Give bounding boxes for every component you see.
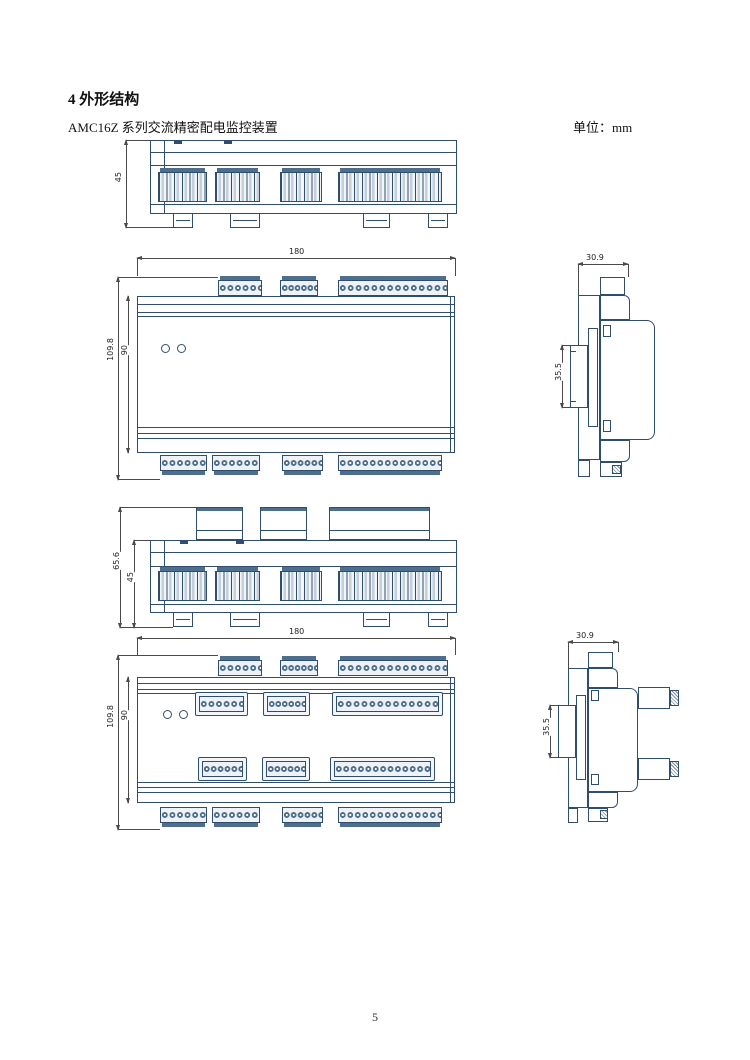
vent-slot — [174, 141, 182, 144]
mounting-foot — [578, 460, 590, 477]
drawing-front-view-plugs: 180 109.8 90 — [110, 630, 470, 835]
drawing-side-view: 30.9 35.5 — [555, 255, 705, 485]
side-plug — [638, 687, 670, 709]
terminal-strip — [338, 571, 442, 601]
edge-line — [137, 427, 455, 428]
terminal-strip — [158, 571, 207, 601]
edge-line — [570, 351, 576, 352]
led-indicator — [161, 344, 170, 353]
terminal-strip — [215, 172, 260, 202]
extension-line — [455, 258, 456, 276]
dim-label-35.5: 35.5 — [542, 718, 552, 736]
terminal-strip — [338, 807, 442, 823]
plug-housing — [260, 507, 307, 540]
terminal-strip — [215, 571, 260, 601]
drawing-top-view: 45 — [118, 138, 463, 233]
drawing-front-view: 180 109.8 90 — [110, 250, 470, 485]
terminal-strip — [218, 280, 262, 296]
led-indicator — [177, 344, 186, 353]
din-clip — [558, 705, 576, 758]
dim-label-45: 45 — [126, 572, 136, 582]
side-plug — [638, 758, 670, 780]
extension-line — [137, 638, 138, 655]
terminal-strip — [160, 807, 207, 823]
edge-line — [150, 552, 457, 553]
housing-lower — [588, 792, 618, 808]
latch-slot — [603, 325, 611, 337]
top-clip — [588, 652, 613, 668]
dim-line-45 — [134, 540, 135, 628]
edge-line — [150, 165, 457, 166]
dim-label-109.8: 109.8 — [106, 338, 116, 361]
vent-slot — [224, 141, 232, 144]
plug-housing — [196, 507, 243, 540]
dim-label-109.8: 109.8 — [106, 705, 116, 728]
terminal-strip — [280, 660, 318, 676]
terminal-strip — [160, 455, 207, 471]
extension-line — [126, 227, 176, 228]
extension-line — [550, 757, 558, 758]
plug-screw-row — [267, 696, 306, 712]
section-title: 4 外形结构 — [68, 88, 139, 109]
mounting-foot — [363, 214, 390, 228]
extension-line — [618, 642, 619, 652]
dim-label-30.9: 30.9 — [585, 254, 605, 262]
dim-label-90: 90 — [120, 710, 130, 720]
edge-line — [260, 530, 307, 531]
edge-line — [570, 401, 576, 402]
edge-line — [150, 152, 457, 153]
edge-line — [137, 433, 455, 434]
mounting-foot — [428, 214, 448, 228]
rail-channel — [588, 328, 598, 427]
edge-line — [137, 304, 455, 305]
dim-label-90: 90 — [120, 345, 130, 355]
latch-slot — [591, 774, 599, 785]
dim-line-180 — [137, 638, 455, 639]
dim-label-45: 45 — [114, 172, 124, 182]
plug-screw-row — [266, 761, 306, 777]
housing-upper — [588, 668, 618, 688]
dim-line-45 — [126, 140, 127, 228]
drawing-side-view-plugs: 30.9 35.5 — [545, 630, 705, 830]
terminal-strip — [282, 807, 323, 823]
housing-upper — [600, 295, 630, 320]
edge-line — [137, 792, 455, 793]
plug-screw-row — [199, 696, 244, 712]
product-line-caption: AMC16Z 系列交流精密配电监控装置 — [68, 117, 278, 136]
dim-line-109.8 — [118, 277, 119, 480]
mounting-foot — [230, 613, 260, 627]
edge-line — [137, 787, 455, 788]
mounting-foot — [230, 214, 260, 228]
plug-end-cap — [670, 690, 679, 706]
extension-line — [120, 627, 173, 628]
plug-housing — [329, 507, 430, 540]
edge-line — [137, 782, 455, 783]
terminal-strip — [218, 660, 262, 676]
vent-slot — [180, 541, 188, 544]
edge-line — [450, 677, 451, 803]
terminal-strip — [338, 172, 442, 202]
dim-label-65.6: 65.6 — [112, 552, 122, 570]
din-clip — [570, 345, 588, 408]
terminal-strip — [212, 807, 260, 823]
extension-line — [578, 264, 579, 295]
mounting-foot — [568, 808, 578, 823]
drawing-top-view-plugs: 65.6 45 — [118, 500, 463, 635]
edge-line — [329, 530, 430, 531]
plug-screw-row — [334, 761, 431, 777]
terminal-strip — [212, 455, 260, 471]
terminal-strip — [280, 571, 322, 601]
edge-line — [137, 312, 455, 313]
dim-label-180: 180 — [288, 628, 305, 636]
unit-label: 单位：mm — [573, 117, 632, 136]
terminal-strip — [338, 455, 442, 471]
edge-line — [137, 438, 455, 439]
plug-end-cap — [670, 761, 679, 777]
mounting-foot — [363, 613, 390, 627]
housing-lower — [600, 440, 630, 462]
device-body-outline — [137, 296, 455, 453]
terminal-strip — [158, 172, 207, 202]
terminal-strip — [282, 455, 323, 471]
extension-line — [562, 345, 570, 346]
mounting-foot — [173, 214, 193, 228]
extension-line — [628, 264, 629, 277]
plug-screw-row — [336, 696, 439, 712]
extension-line — [118, 829, 160, 830]
edge-line — [137, 689, 455, 690]
dim-line-109.8 — [118, 655, 119, 830]
terminal-strip — [280, 280, 318, 296]
extension-line — [137, 258, 138, 276]
latch-slot — [591, 690, 599, 701]
extension-line — [118, 655, 218, 656]
edge-line — [137, 683, 455, 684]
plug-screw-row — [202, 761, 243, 777]
dim-line-180 — [137, 258, 455, 259]
extension-line — [568, 642, 569, 668]
dim-line-90 — [128, 677, 129, 803]
terminal-strip — [338, 660, 448, 676]
dim-line-30.9 — [578, 264, 628, 265]
top-clip — [600, 277, 625, 295]
led-indicator — [179, 710, 188, 719]
clip-hatch — [612, 465, 621, 474]
mounting-foot — [173, 613, 193, 627]
terminal-strip — [338, 280, 448, 296]
extension-line — [120, 507, 196, 508]
dim-line-90 — [128, 296, 129, 453]
latch-slot — [603, 420, 611, 432]
rail-channel — [576, 695, 586, 780]
extension-line — [118, 277, 218, 278]
edge-line — [196, 530, 243, 531]
page-number: 5 — [0, 1010, 750, 1025]
extension-line — [455, 638, 456, 655]
led-indicator — [163, 710, 172, 719]
extension-line — [550, 705, 558, 706]
clip-hatch — [600, 810, 608, 819]
edge-line — [450, 296, 451, 453]
edge-line — [137, 316, 455, 317]
mounting-foot — [428, 613, 448, 627]
extension-line — [134, 540, 150, 541]
terminal-strip — [280, 172, 322, 202]
dim-label-180: 180 — [288, 248, 305, 256]
edge-line — [150, 204, 457, 205]
extension-line — [562, 407, 570, 408]
dim-label-35.5: 35.5 — [554, 363, 564, 381]
edge-line — [150, 604, 457, 605]
dim-line-30.9 — [568, 642, 618, 643]
extension-line — [118, 479, 160, 480]
vent-slot — [236, 541, 244, 544]
dim-label-30.9: 30.9 — [575, 632, 595, 640]
extension-line — [126, 140, 152, 141]
